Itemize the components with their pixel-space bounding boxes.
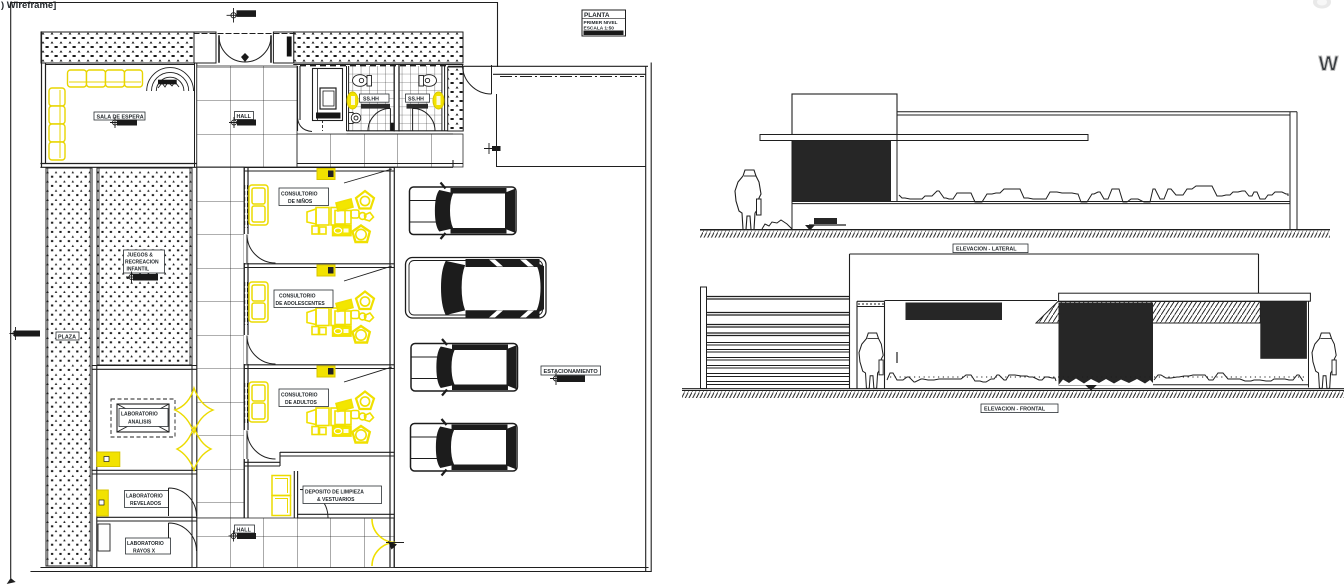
svg-text:CONSULTORIO: CONSULTORIO [281, 392, 318, 398]
svg-text:DE NIÑOS: DE NIÑOS [288, 198, 313, 205]
svg-text:JUEGOS &: JUEGOS & [127, 253, 153, 259]
svg-text:& VESTUARIOS: & VESTUARIOS [317, 497, 355, 503]
svg-text:CONSULTORIO: CONSULTORIO [279, 293, 316, 299]
svg-text:CONSULTORIO: CONSULTORIO [281, 191, 318, 197]
svg-text:DE ADOLESCENTES: DE ADOLESCENTES [276, 301, 326, 307]
svg-text:SS.HH: SS.HH [408, 97, 424, 103]
svg-text:DE ADULTOS: DE ADULTOS [285, 400, 318, 406]
svg-text:SS.HH: SS.HH [363, 97, 379, 103]
svg-text:DEPOSITO DE LIMPIEZA: DEPOSITO DE LIMPIEZA [305, 489, 364, 495]
svg-text:LABORATORIO: LABORATORIO [127, 541, 164, 547]
svg-text:PLANTA: PLANTA [584, 12, 610, 19]
svg-text:) Wireframe]: ) Wireframe] [1, 0, 56, 11]
svg-text:LABORATORIO: LABORATORIO [121, 412, 158, 418]
svg-text:ELEVACION - LATERAL: ELEVACION - LATERAL [956, 247, 1017, 253]
svg-text:ANALISIS: ANALISIS [128, 420, 152, 426]
svg-text:RECREACION: RECREACION [125, 260, 159, 266]
svg-text:LABORATORIO: LABORATORIO [126, 494, 163, 500]
svg-text:ESTACIONAMIENTO: ESTACIONAMIENTO [544, 369, 599, 375]
svg-text:REVELADOS: REVELADOS [130, 501, 162, 507]
svg-text:ELEVACION - FRONTAL: ELEVACION - FRONTAL [984, 407, 1046, 413]
svg-text:PRIMER NIVEL: PRIMER NIVEL [584, 20, 618, 26]
svg-text:HALL: HALL [237, 527, 252, 533]
svg-text:SALA DE ESPERA: SALA DE ESPERA [97, 114, 144, 120]
svg-text:W: W [1319, 53, 1339, 76]
svg-text:PLAZA: PLAZA [58, 334, 76, 340]
svg-text:RAYOS X: RAYOS X [133, 549, 156, 555]
svg-text:INFANTIL: INFANTIL [127, 267, 150, 273]
svg-text:HALL: HALL [237, 114, 252, 120]
